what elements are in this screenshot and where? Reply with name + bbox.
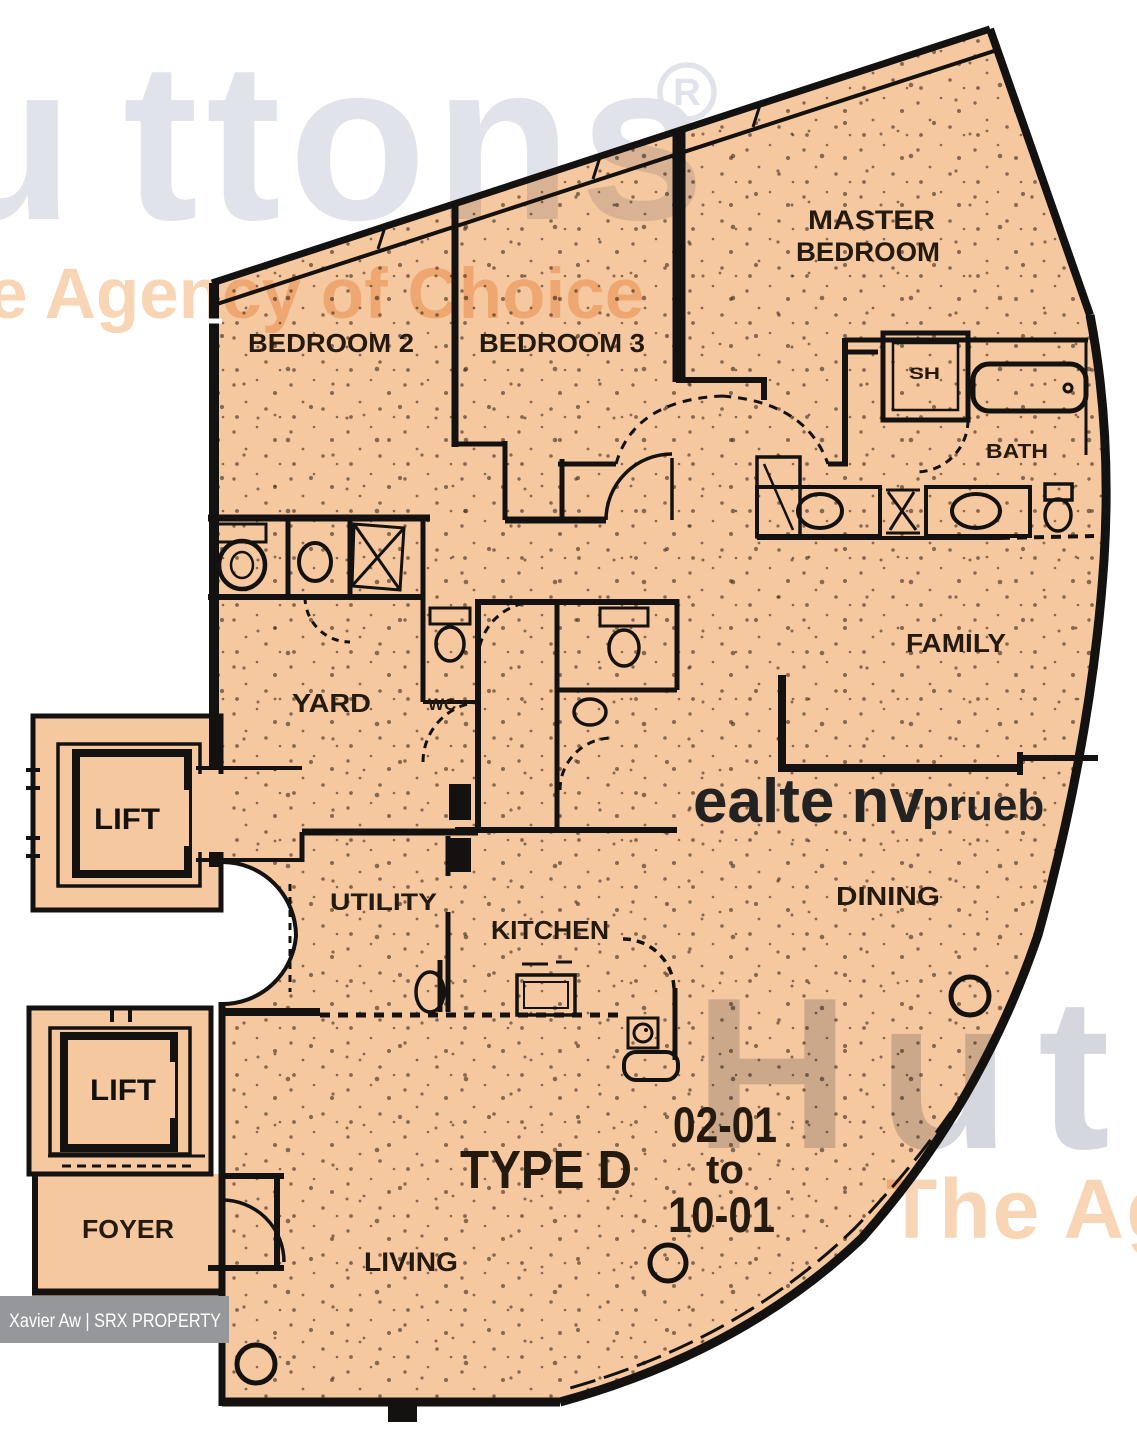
svg-text:to: to bbox=[706, 1148, 744, 1192]
svg-text:R: R bbox=[673, 72, 700, 114]
svg-text:BEDROOM 2: BEDROOM 2 bbox=[248, 328, 414, 358]
svg-text:LIVING: LIVING bbox=[364, 1247, 458, 1277]
svg-text:UTILITY: UTILITY bbox=[330, 889, 437, 916]
svg-text:FOYER: FOYER bbox=[82, 1214, 174, 1244]
svg-text:KITCHEN: KITCHEN bbox=[491, 915, 609, 945]
svg-text:SH: SH bbox=[909, 364, 940, 383]
svg-text:prueb: prueb bbox=[922, 781, 1044, 830]
svg-text:10-01: 10-01 bbox=[668, 1187, 775, 1243]
svg-text:02-01: 02-01 bbox=[673, 1097, 777, 1153]
svg-text:DINING: DINING bbox=[836, 881, 940, 911]
svg-text:u: u bbox=[0, 15, 73, 267]
svg-text:MASTER: MASTER bbox=[808, 205, 935, 235]
svg-text:BEDROOM 3: BEDROOM 3 bbox=[479, 328, 645, 358]
svg-text:The Agen: The Agen bbox=[886, 1162, 1137, 1256]
svg-text:LIFT: LIFT bbox=[94, 803, 160, 836]
svg-text:ttons: ttons bbox=[123, 15, 713, 267]
svg-text:BEDROOM: BEDROOM bbox=[796, 237, 940, 267]
svg-text:Xavier Aw | SRX PROPERTY: Xavier Aw | SRX PROPERTY bbox=[9, 1310, 221, 1332]
svg-text:TYPE D: TYPE D bbox=[460, 1140, 632, 1200]
svg-text:ealte nv: ealte nv bbox=[693, 767, 924, 836]
svg-text:YARD: YARD bbox=[292, 688, 371, 718]
svg-text:LIFT: LIFT bbox=[90, 1074, 156, 1107]
svg-text:e Agency of Choice: e Agency of Choice bbox=[0, 255, 644, 334]
svg-text:WC: WC bbox=[428, 695, 456, 714]
svg-text:FAMILY: FAMILY bbox=[906, 628, 1006, 658]
svg-text:BATH: BATH bbox=[986, 441, 1048, 463]
